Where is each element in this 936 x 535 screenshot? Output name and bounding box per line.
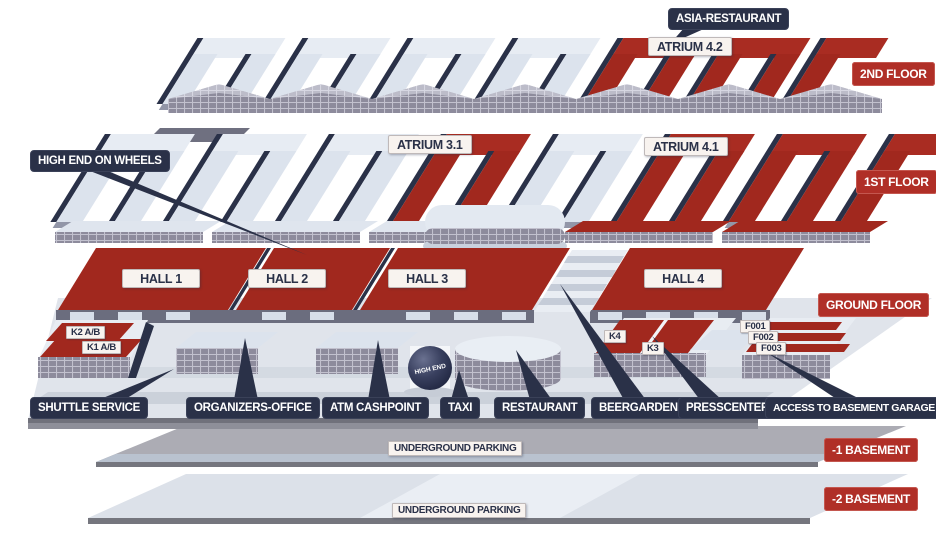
label-k2ab: K2 A/B <box>66 326 105 339</box>
label-hall-4: HALL 4 <box>644 269 722 288</box>
floor-label-ground: GROUND FLOOR <box>818 293 929 317</box>
callout-restaurant: RESTAURANT <box>494 397 585 419</box>
floor-label-basement-2: -2 BASEMENT <box>824 487 918 511</box>
label-k4: K4 <box>604 330 626 343</box>
callout-access-basement-garage: ACCESS TO BASEMENT GARAGE <box>765 397 936 419</box>
callout-shuttle-service: SHUTTLE SERVICE <box>30 397 148 419</box>
label-hall-1: HALL 1 <box>122 269 200 288</box>
floor-label-basement-1: -1 BASEMENT <box>824 438 918 462</box>
callout-beergarden: BEERGARDEN <box>591 397 686 419</box>
label-hall-2: HALL 2 <box>248 269 326 288</box>
callout-high-end-on-wheels: HIGH END ON WHEELS <box>30 150 170 172</box>
label-atrium-3-1: ATRIUM 3.1 <box>388 135 472 154</box>
restaurant-cylinder <box>455 336 561 391</box>
label-underground-parking-1: UNDERGROUND PARKING <box>388 441 522 456</box>
label-atrium-4-1: ATRIUM 4.1 <box>644 137 728 156</box>
floor-label-2nd: 2ND FLOOR <box>852 62 935 86</box>
label-f003: F003 <box>756 342 786 355</box>
high-end-sphere: HIGH END <box>404 346 456 397</box>
callout-organizers-office: ORGANIZERS-OFFICE <box>186 397 320 419</box>
venue-exploded-floor-diagram: HIGH END <box>0 0 936 535</box>
label-k3: K3 <box>642 342 664 355</box>
callout-taxi: TAXI <box>440 397 480 419</box>
label-underground-parking-2: UNDERGROUND PARKING <box>392 503 526 518</box>
second-floor-layer <box>153 38 889 113</box>
callout-atm-cashpoint: ATM CASHPOINT <box>322 397 429 419</box>
callout-presscenter: PRESSCENTER <box>678 397 777 419</box>
callout-asia-restaurant: ASIA-RESTAURANT <box>668 8 789 30</box>
label-hall-3: HALL 3 <box>388 269 466 288</box>
label-k1ab: K1 A/B <box>82 341 121 354</box>
label-atrium-4-2: ATRIUM 4.2 <box>648 37 732 56</box>
floor-label-1st: 1ST FLOOR <box>856 170 936 194</box>
